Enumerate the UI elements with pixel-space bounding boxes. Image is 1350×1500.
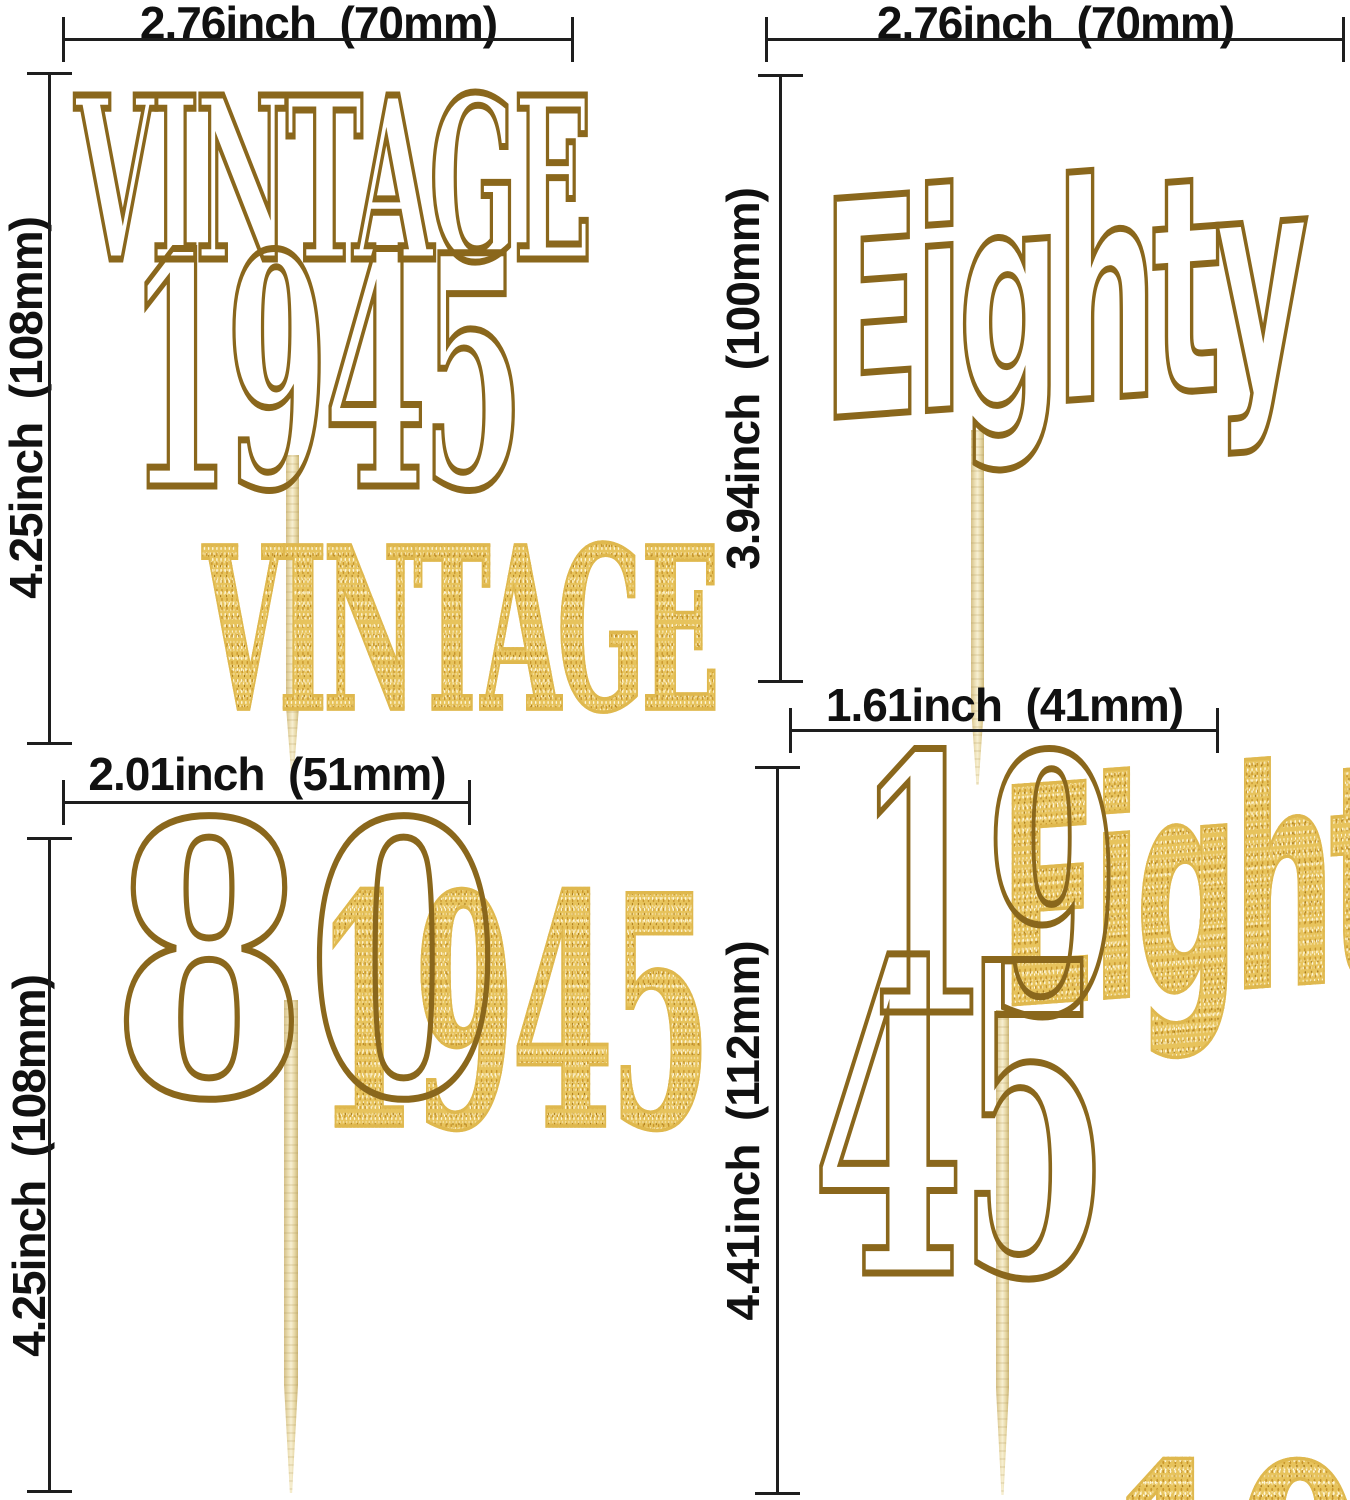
q3-height-measure-line [48,838,51,1493]
q4-height-tick-bottom [755,1492,800,1495]
q1-width-tick-left [62,17,65,62]
q2-width-measure-line [766,38,1345,41]
q4-width-measure-line [790,729,1219,732]
q3-topper-number-80: 80 80 [112,776,890,1500]
q4-width-tick-left [789,708,792,753]
q3-height-tick-bottom [27,1490,72,1493]
q4-height-label: 4.41inch (112mm) [720,831,766,1431]
q2-width-tick-right [1342,17,1345,62]
q4-topper-number-45: 45 45 [812,908,1350,1500]
q4-width-tick-right [1216,708,1219,753]
q1-height-tick-bottom [27,742,72,745]
q4-topper-number-45-edge: 45 [812,908,1104,1338]
q2-height-measure-line [779,75,782,683]
q2-height-label: 3.94inch (100mm) [720,79,766,679]
q4-width-label: 1.61inch (41mm) [790,682,1219,728]
product-dimension-image: 2.76inch (70mm) 4.25inch (108mm) VINTAGE… [0,0,1350,1500]
q4-height-measure-line [776,767,779,1495]
q3-width-tick-right [468,780,471,825]
q3-height-label: 4.25inch (108mm) [6,866,52,1466]
q1-height-measure-line [48,73,51,745]
q1-height-tick-top [27,72,72,75]
q2-height-tick-top [758,74,803,77]
q3-width-measure-line [63,801,471,804]
q1-width-measure-line [63,38,574,41]
q2-topper-word-eighty-edge: Eighty [822,130,1303,465]
q4-height-tick-top [755,766,800,769]
q1-width-tick-right [571,17,574,62]
q1-height-label: 4.25inch (108mm) [3,108,49,708]
q2-width-tick-left [765,17,768,62]
q3-topper-number-80-edge: 80 [112,776,501,1151]
q3-width-tick-left [62,780,65,825]
q3-height-tick-top [27,837,72,840]
q3-width-label: 2.01inch (51mm) [63,751,471,797]
q1-topper-year-1945-edge: 1945 [128,215,520,535]
